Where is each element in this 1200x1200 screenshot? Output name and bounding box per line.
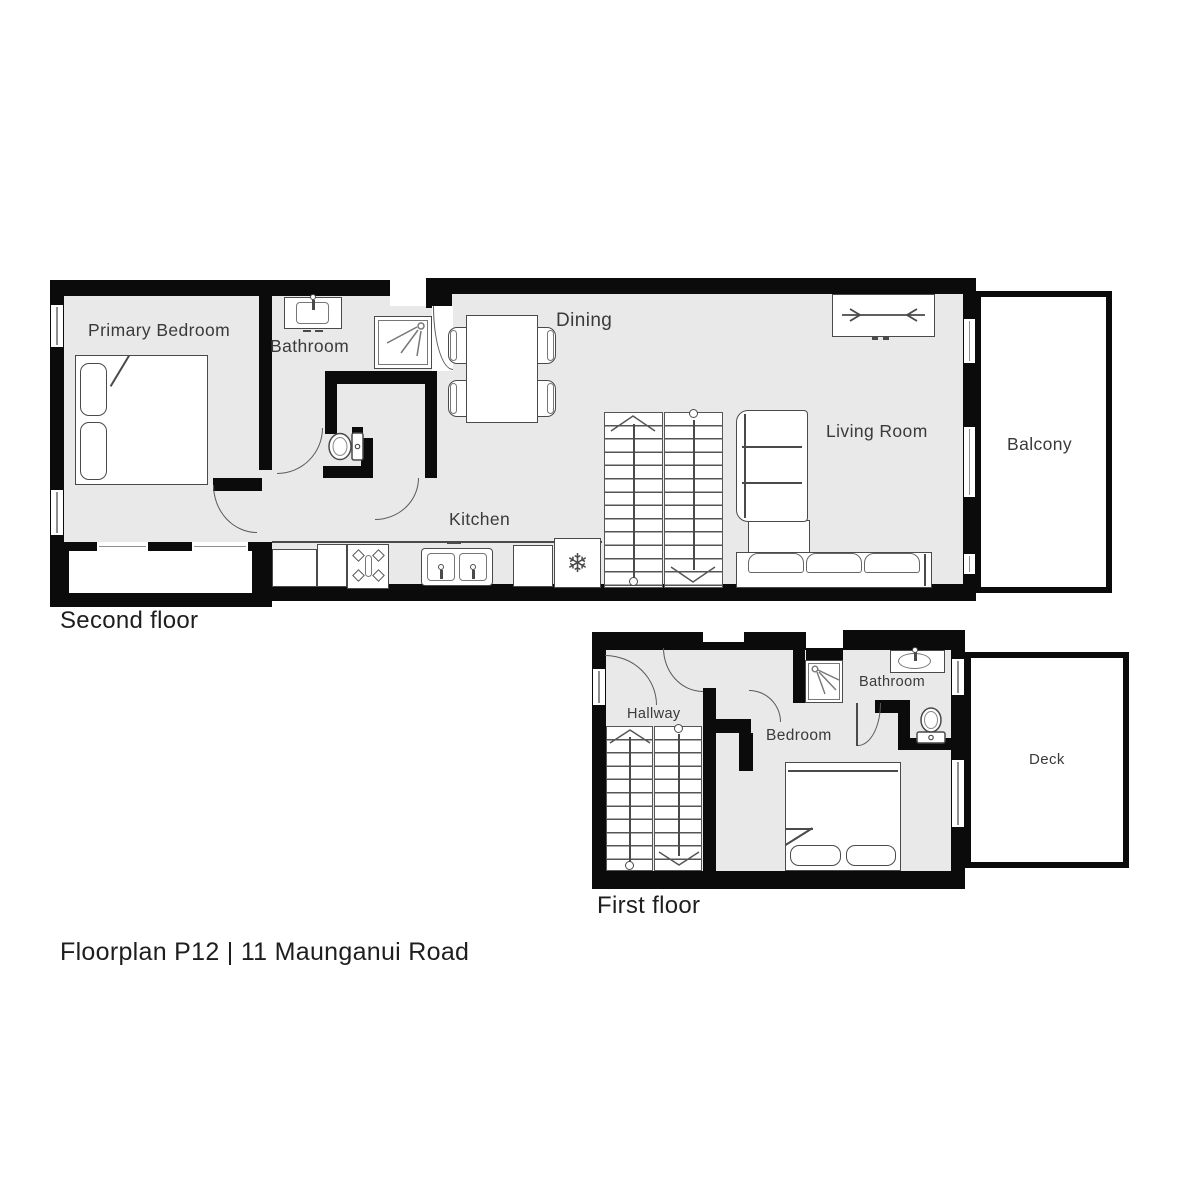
stair-newel-post [689,409,698,418]
wall-top [50,280,390,296]
window [952,656,964,698]
sofa-cushion [806,553,862,573]
stair-newel-post [674,724,683,733]
room-label-bathroom-second: Bathroom [270,336,349,357]
window [51,487,63,538]
toilet-icon [915,707,947,746]
sofa-cushion [748,553,804,573]
wall [325,371,437,384]
vanity-handle [315,330,323,332]
chair-back [547,330,554,361]
wall [425,384,437,478]
floor-label-second: Second floor [60,607,198,635]
bay-window-area [69,551,252,593]
wall-pier [426,278,452,308]
stair-guide-line [633,424,635,584]
floorplan-page: ❄ Primary Be [0,0,1200,1200]
tv-arrow-icon [834,296,933,335]
counter-tick [447,541,461,544]
sofa-seat [748,520,810,554]
stove-center [365,555,372,577]
chair-back [450,330,457,361]
kitchen-cabinet [317,544,347,587]
room-label-bathroom-first: Bathroom [859,674,925,690]
window [964,316,975,366]
wall [898,713,910,750]
wall-top [452,278,963,294]
fridge: ❄ [554,538,601,588]
pillow [790,845,841,866]
stair-newel-post [625,861,634,870]
stairs-up-arrow-icon [610,414,656,432]
sofa-arm-line [924,554,926,586]
stair-guide-line [678,734,680,856]
wall-notch [703,632,744,642]
kitchen-cabinet [272,549,317,587]
tap-icon [310,294,316,300]
wall [703,719,751,733]
tv-unit-handle [883,337,889,340]
tap-icon [440,570,443,579]
wall [50,593,272,607]
pillow [80,363,107,416]
wall-notch [390,278,426,306]
room-label-living-room: Living Room [826,421,928,442]
room-label-dining: Dining [556,310,612,332]
room-label-deck: Deck [1029,751,1065,768]
wall-stairs [703,688,716,871]
shower-spray-icon [380,318,430,364]
wall [325,384,337,434]
balcony-door-window [964,424,975,500]
floor-label-first: First floor [597,892,700,920]
stair-newel-post [629,577,638,586]
stair-guide-line [693,420,695,570]
wall [739,733,753,771]
floorplan-title: Floorplan P12 | 11 Maunganui Road [60,938,469,967]
vanity-handle [303,330,311,332]
room-label-primary-bedroom: Primary Bedroom [88,320,230,341]
tap-icon [312,300,315,310]
kitchen-counter-line [272,541,602,543]
chaise-cushion-line [742,482,802,484]
chaise-arm-line [744,414,746,518]
stairs-up-arrow-icon [609,728,651,744]
stair-guide-line [629,737,631,867]
sofa-chaise [736,410,808,522]
room-label-bedroom: Bedroom [766,727,832,745]
pillow [846,845,896,866]
chair-back [450,383,457,414]
tap-icon [914,652,917,661]
window [952,757,964,830]
wall [323,466,373,478]
pillow [80,422,107,480]
wall-shower [793,648,805,703]
wall-bedroom-bathroom [259,292,272,470]
window [189,542,251,551]
tap-icon [912,647,918,653]
toilet-icon [327,431,365,462]
wall-bottom [592,871,965,889]
window [94,542,151,551]
shower-spray-icon [808,662,842,700]
sofa-cushion [864,553,920,573]
chair-back [547,383,554,414]
wall-top [843,630,965,650]
room-label-hallway: Hallway [627,706,681,722]
window [593,666,605,708]
bed-head-line [788,770,898,772]
room-label-kitchen: Kitchen [449,509,510,530]
room-label-balcony: Balcony [1007,434,1072,455]
fridge-icon: ❄ [567,548,589,579]
kitchen-cabinet [513,545,553,587]
dining-table [466,315,538,423]
chaise-cushion-line [742,446,802,448]
tap-icon [472,570,475,579]
window [51,302,63,350]
tv-unit-handle [872,337,878,340]
stairs-down-arrow-icon [670,566,716,584]
stairs-down-arrow-icon [658,851,700,867]
window [964,551,975,577]
